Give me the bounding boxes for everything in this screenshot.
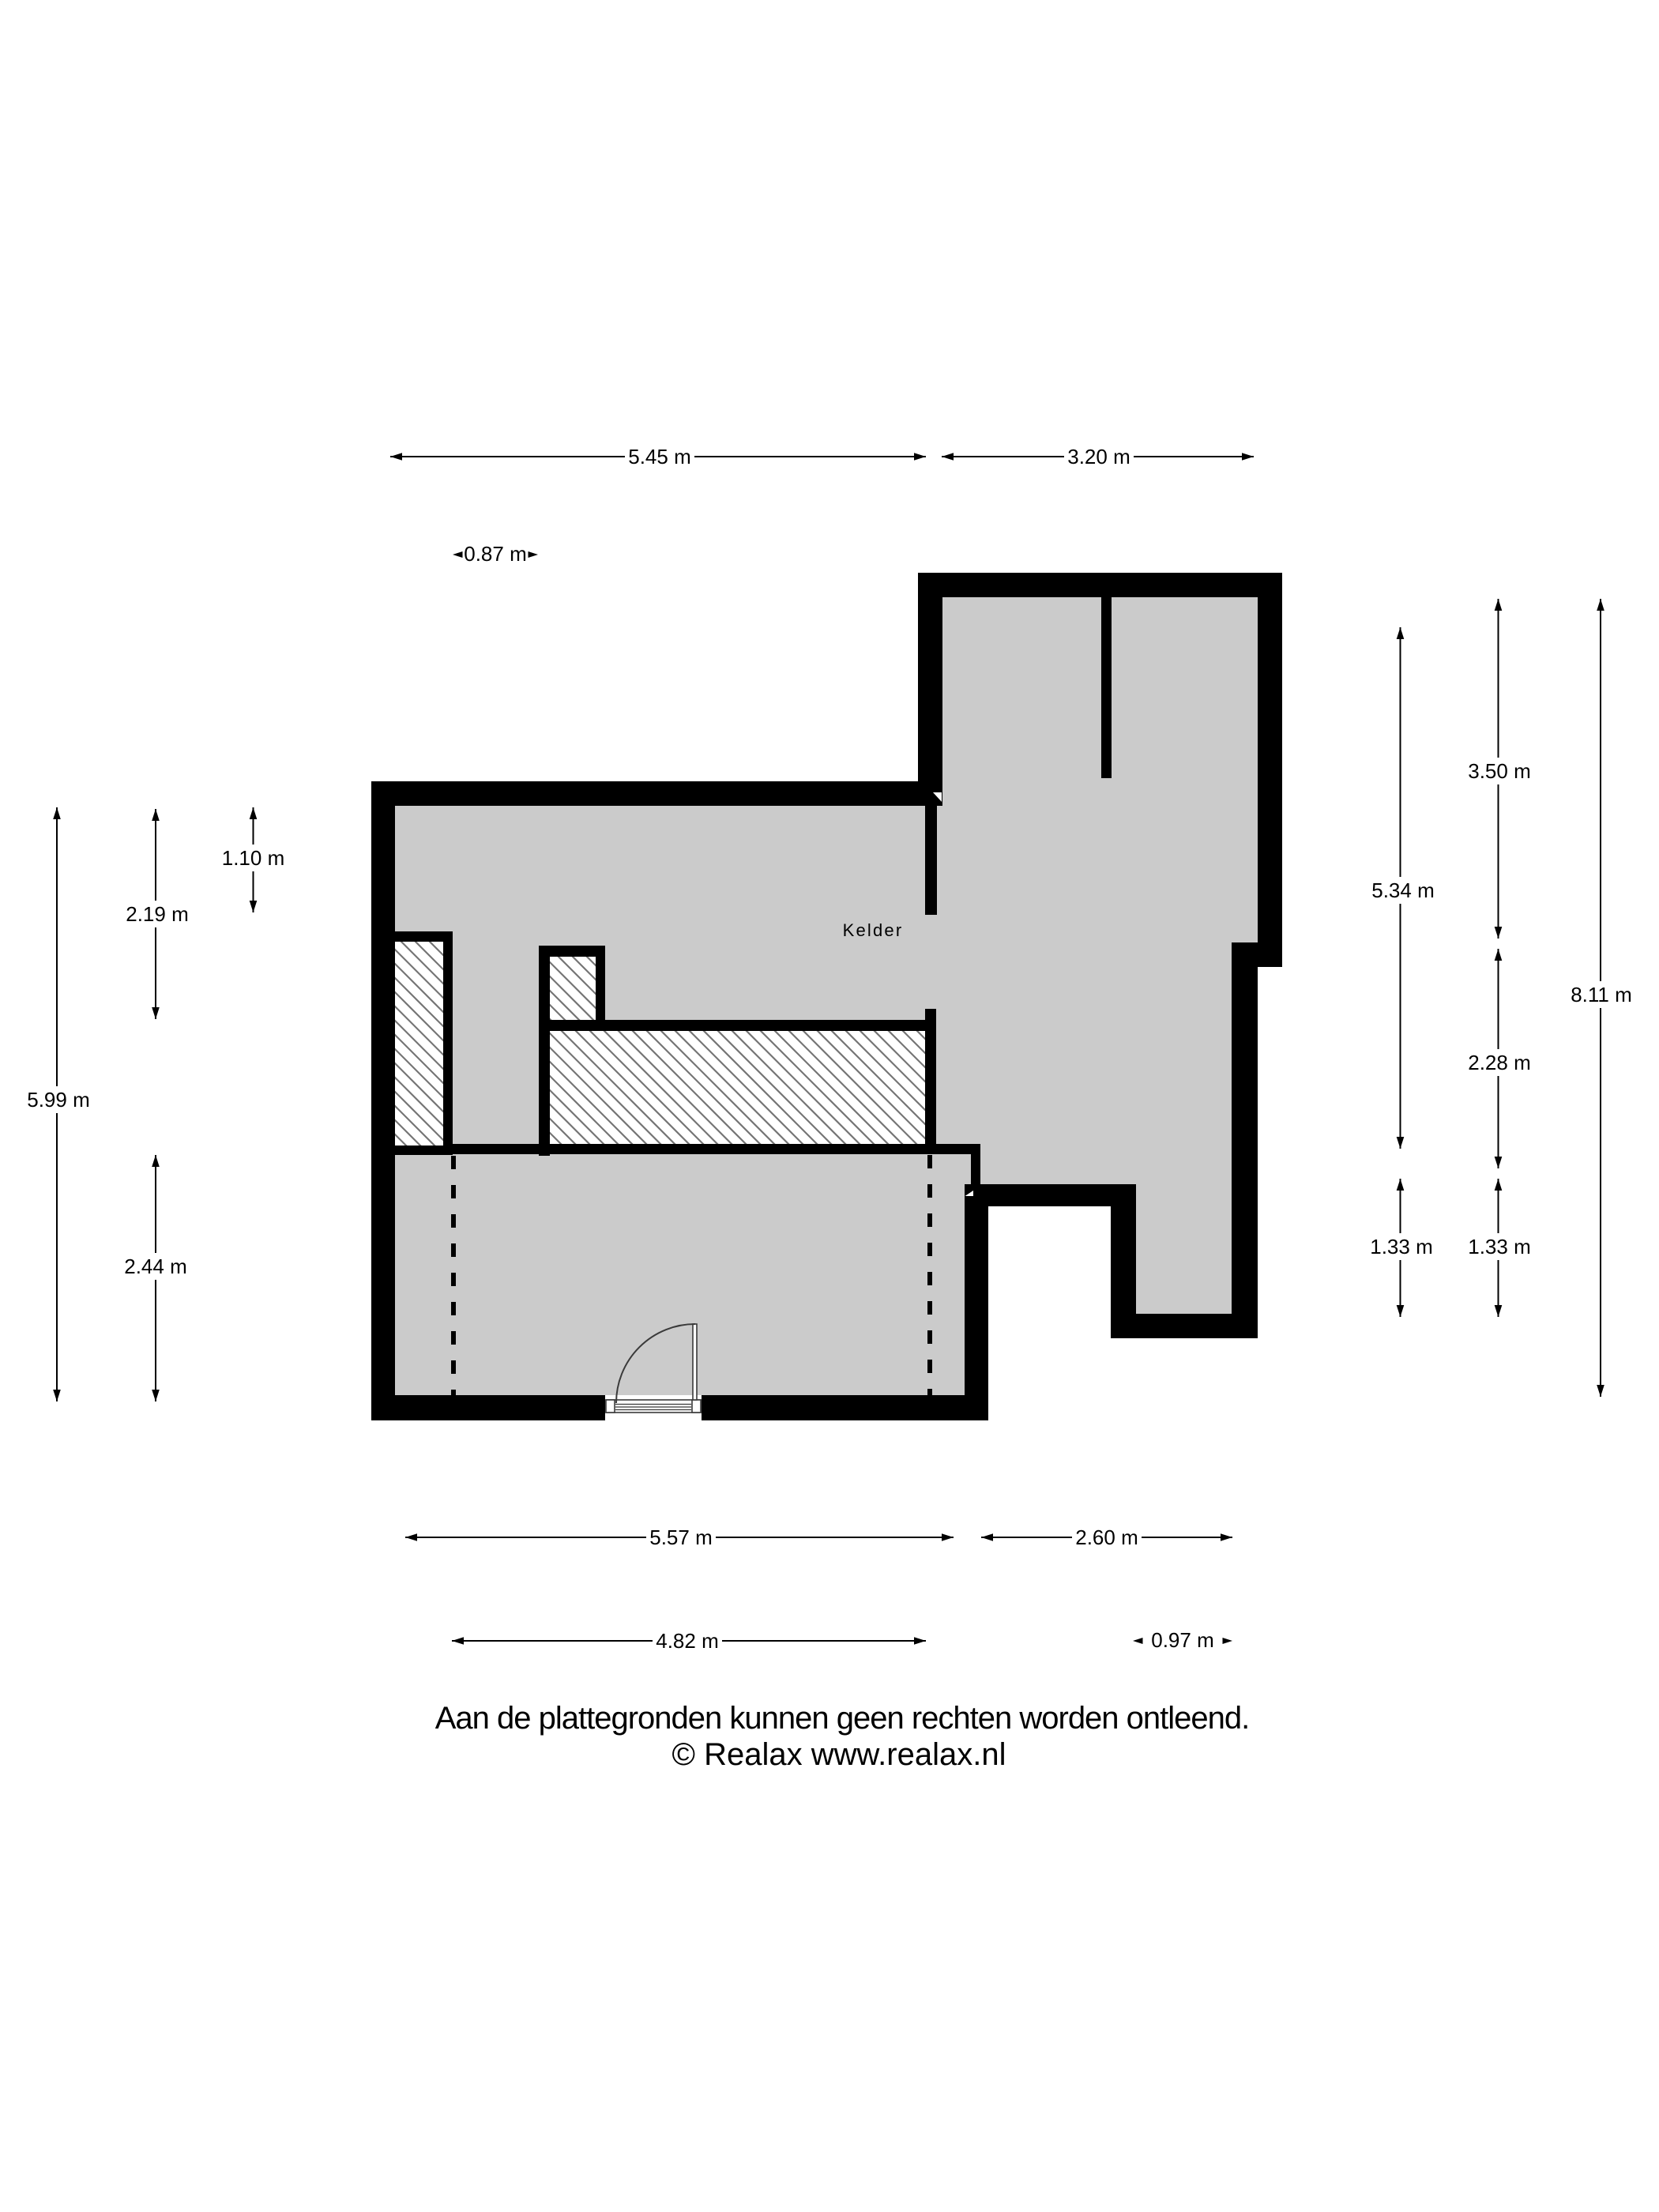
svg-text:2.60 m: 2.60 m [1075, 1525, 1138, 1549]
svg-text:1.33 m: 1.33 m [1370, 1235, 1433, 1258]
svg-text:8.11 m: 8.11 m [1571, 983, 1632, 1006]
svg-text:1.10 m: 1.10 m [222, 846, 285, 870]
svg-text:3.50 m: 3.50 m [1468, 759, 1531, 783]
svg-text:4.82 m: 4.82 m [656, 1629, 719, 1653]
svg-text:5.34 m: 5.34 m [1371, 878, 1435, 902]
svg-text:1.33 m: 1.33 m [1468, 1235, 1531, 1258]
svg-text:2.19 m: 2.19 m [126, 902, 189, 926]
svg-text:5.57 m: 5.57 m [649, 1525, 713, 1549]
svg-text:5.99 m: 5.99 m [27, 1088, 90, 1112]
svg-text:2.44 m: 2.44 m [124, 1255, 187, 1278]
svg-text:Aan de plattegronden kunnen ge: Aan de plattegronden kunnen geen rechten… [435, 1701, 1250, 1736]
svg-text:3.20 m: 3.20 m [1067, 445, 1130, 468]
svg-text:0.87 m: 0.87 m [464, 542, 527, 566]
svg-text:5.45 m: 5.45 m [628, 445, 691, 468]
svg-text:© Realax www.realax.nl: © Realax www.realax.nl [672, 1737, 1006, 1772]
svg-text:2.28 m: 2.28 m [1468, 1051, 1531, 1074]
svg-text:0.97 m: 0.97 m [1151, 1628, 1214, 1652]
svg-text:Kelder: Kelder [843, 920, 904, 940]
